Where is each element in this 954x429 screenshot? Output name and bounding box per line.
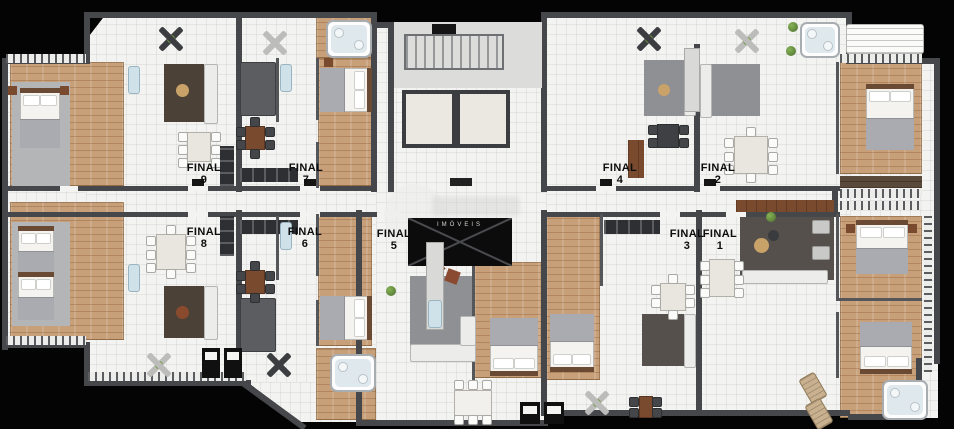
hot-tub	[330, 354, 376, 392]
partition-wall	[276, 58, 279, 122]
unit-label-text: FINAL	[187, 226, 221, 238]
sofa	[204, 64, 218, 124]
chair	[265, 271, 275, 281]
stair-landing-mark	[432, 24, 456, 34]
partition-wall	[836, 62, 839, 174]
chair	[178, 132, 188, 142]
chair	[685, 298, 695, 308]
nightstand	[846, 224, 855, 233]
door-gap	[60, 186, 78, 191]
unit-label-text: FINAL	[288, 226, 322, 238]
nightstand	[324, 58, 333, 67]
unit-label-final-6: FINAL6	[282, 226, 328, 250]
bathtub	[280, 64, 292, 92]
door-gap	[700, 186, 720, 191]
dining-table	[245, 126, 265, 150]
kitchen-counter	[736, 200, 834, 212]
unit-label-final-5: FINAL5	[371, 228, 417, 252]
wall	[541, 210, 547, 416]
chair	[186, 250, 196, 260]
unit-label-text: FINAL	[701, 162, 735, 174]
nightstand	[908, 224, 917, 233]
hot-tub	[326, 20, 372, 58]
door-gap	[660, 212, 680, 217]
chair	[668, 274, 678, 284]
unit-label-text: FINAL	[187, 162, 221, 174]
chair	[250, 149, 260, 159]
watermark-text: IMÓVEIS	[408, 222, 512, 228]
chair	[146, 236, 156, 246]
unit-label-number: 6	[282, 238, 328, 250]
bed	[856, 224, 908, 274]
unit-label-text: FINAL	[703, 228, 737, 240]
nightstand	[60, 86, 69, 95]
railing-hatch	[6, 54, 86, 63]
bed	[20, 92, 60, 148]
side-table	[176, 84, 189, 97]
unit-label-text: FINAL	[603, 162, 637, 174]
x-lounge-chair	[636, 26, 662, 52]
unit-label-number: 4	[597, 174, 643, 186]
chair	[468, 380, 478, 390]
chair	[652, 397, 662, 407]
railing-hatch	[840, 201, 922, 210]
unit-label-number: 7	[283, 174, 329, 186]
chair	[265, 140, 275, 150]
unit-label-number: 2	[695, 174, 741, 186]
chair	[454, 380, 464, 390]
side-table	[658, 84, 670, 96]
chair	[700, 275, 710, 285]
dining-table	[660, 283, 686, 311]
chair	[685, 285, 695, 295]
chair	[734, 288, 744, 298]
unit-label-text: FINAL	[377, 228, 411, 240]
bed	[550, 314, 594, 368]
nightstand	[8, 86, 17, 95]
bed	[18, 276, 54, 320]
corridor-wall	[545, 212, 840, 217]
chair	[629, 397, 639, 407]
chair	[236, 284, 246, 294]
bench	[202, 348, 220, 378]
door-gap	[188, 212, 208, 217]
door-gap	[726, 212, 746, 217]
coffee-table	[768, 230, 779, 241]
bathtub	[128, 264, 140, 292]
chair	[768, 165, 778, 175]
sofa	[204, 286, 218, 340]
deck-bench	[846, 24, 924, 54]
bed	[320, 296, 368, 340]
bench	[520, 402, 540, 424]
chair	[482, 380, 492, 390]
dining-table	[187, 132, 211, 162]
chair	[651, 298, 661, 308]
bed	[866, 88, 914, 150]
chair	[186, 263, 196, 273]
living-rug	[642, 314, 684, 366]
railing-hatch	[924, 216, 932, 372]
unit-label-text: FINAL	[289, 162, 323, 174]
plant	[386, 286, 396, 296]
bathtub	[428, 300, 442, 328]
chair	[734, 261, 744, 271]
door-gap	[188, 186, 208, 191]
dining-table	[709, 259, 735, 297]
wall	[545, 12, 850, 18]
bench	[544, 402, 564, 424]
elevator	[402, 90, 456, 148]
wall	[86, 12, 377, 18]
chair	[668, 310, 678, 320]
sofa	[460, 316, 476, 346]
chair	[700, 288, 710, 298]
chair	[768, 138, 778, 148]
dining-table	[657, 124, 679, 148]
chair	[679, 138, 689, 148]
x-lounge-chair	[146, 352, 172, 378]
chair	[648, 138, 658, 148]
hot-tub	[800, 22, 840, 58]
partition-wall	[836, 298, 922, 301]
partition-wall	[316, 58, 319, 120]
x-lounge-chair	[584, 390, 610, 416]
chair	[651, 285, 661, 295]
elevator	[456, 90, 510, 148]
chair	[146, 263, 156, 273]
x-lounge-chair	[266, 352, 292, 378]
floor-plan-canvas: IMÓVEIS	[0, 0, 954, 429]
unit-label-number: 9	[181, 174, 227, 186]
fire-bowl	[176, 306, 189, 319]
chair	[146, 250, 156, 260]
armchair	[812, 220, 830, 234]
plant	[786, 46, 796, 56]
railing-hatch	[6, 336, 86, 345]
armchair	[812, 246, 830, 260]
sofa	[742, 270, 828, 284]
railing-hatch	[840, 189, 922, 198]
bed	[490, 318, 538, 372]
chair	[724, 152, 734, 162]
unit-label-final-7: FINAL7	[283, 162, 329, 186]
hot-tub	[882, 380, 928, 420]
unit-label-final-2: FINAL2	[695, 162, 741, 186]
bench	[224, 348, 242, 378]
sofa	[410, 344, 476, 362]
corridor-wall	[545, 186, 840, 191]
chair	[236, 127, 246, 137]
unit-label-number: 8	[181, 238, 227, 250]
coffee-table	[754, 238, 769, 253]
chair	[768, 152, 778, 162]
chair	[250, 117, 260, 127]
chair	[250, 261, 260, 271]
chair	[679, 125, 689, 135]
unit-label-final-9: FINAL9	[181, 162, 227, 186]
partition-wall	[316, 300, 319, 346]
chair	[265, 284, 275, 294]
bathtub	[128, 66, 140, 94]
plant	[788, 22, 798, 32]
partition-wall	[600, 214, 603, 286]
partition-wall	[836, 312, 839, 378]
chair	[250, 293, 260, 303]
kitchen-counter	[604, 220, 660, 234]
unit-label-number: 5	[371, 240, 417, 252]
dining-table	[245, 270, 265, 294]
sofa	[700, 64, 712, 118]
x-lounge-chair	[262, 30, 288, 56]
chair	[236, 140, 246, 150]
chair	[211, 132, 221, 142]
chair	[454, 415, 464, 425]
x-lounge-chair	[734, 28, 760, 54]
wall	[2, 60, 8, 350]
sofa	[684, 314, 696, 368]
lobby-bench	[450, 178, 472, 186]
unit-label-final-8: FINAL8	[181, 226, 227, 250]
sofa	[240, 62, 276, 116]
chair	[648, 125, 658, 135]
partition-wall	[836, 214, 839, 298]
chair	[746, 127, 756, 137]
dining-table	[454, 390, 492, 416]
gourmet-deck	[840, 176, 922, 188]
door-gap	[596, 186, 616, 191]
chair	[468, 415, 478, 425]
wall	[934, 58, 940, 364]
sofa	[240, 298, 276, 352]
chair	[482, 415, 492, 425]
chair	[629, 408, 639, 418]
bistro-table	[639, 396, 653, 418]
unit-label-final-1: FINAL1	[697, 228, 743, 252]
bed	[320, 68, 368, 112]
chair	[724, 138, 734, 148]
unit-label-number: 1	[697, 240, 743, 252]
watermark-ghost-text	[432, 196, 520, 216]
bed	[18, 230, 54, 274]
chair	[166, 269, 176, 279]
chair	[265, 127, 275, 137]
void-x-box: IMÓVEIS	[408, 218, 512, 266]
railing-hatch	[840, 54, 922, 63]
chair	[166, 225, 176, 235]
living-rug	[710, 64, 760, 116]
laundry-counter	[684, 48, 700, 112]
chair	[734, 275, 744, 285]
chair	[236, 271, 246, 281]
chair	[652, 408, 662, 418]
chair	[178, 145, 188, 155]
bed	[860, 322, 912, 370]
chair	[700, 261, 710, 271]
unit-label-final-4: FINAL4	[597, 162, 643, 186]
x-lounge-chair	[158, 26, 184, 52]
chair	[746, 173, 756, 183]
stairs	[404, 34, 504, 70]
plant	[766, 212, 776, 222]
